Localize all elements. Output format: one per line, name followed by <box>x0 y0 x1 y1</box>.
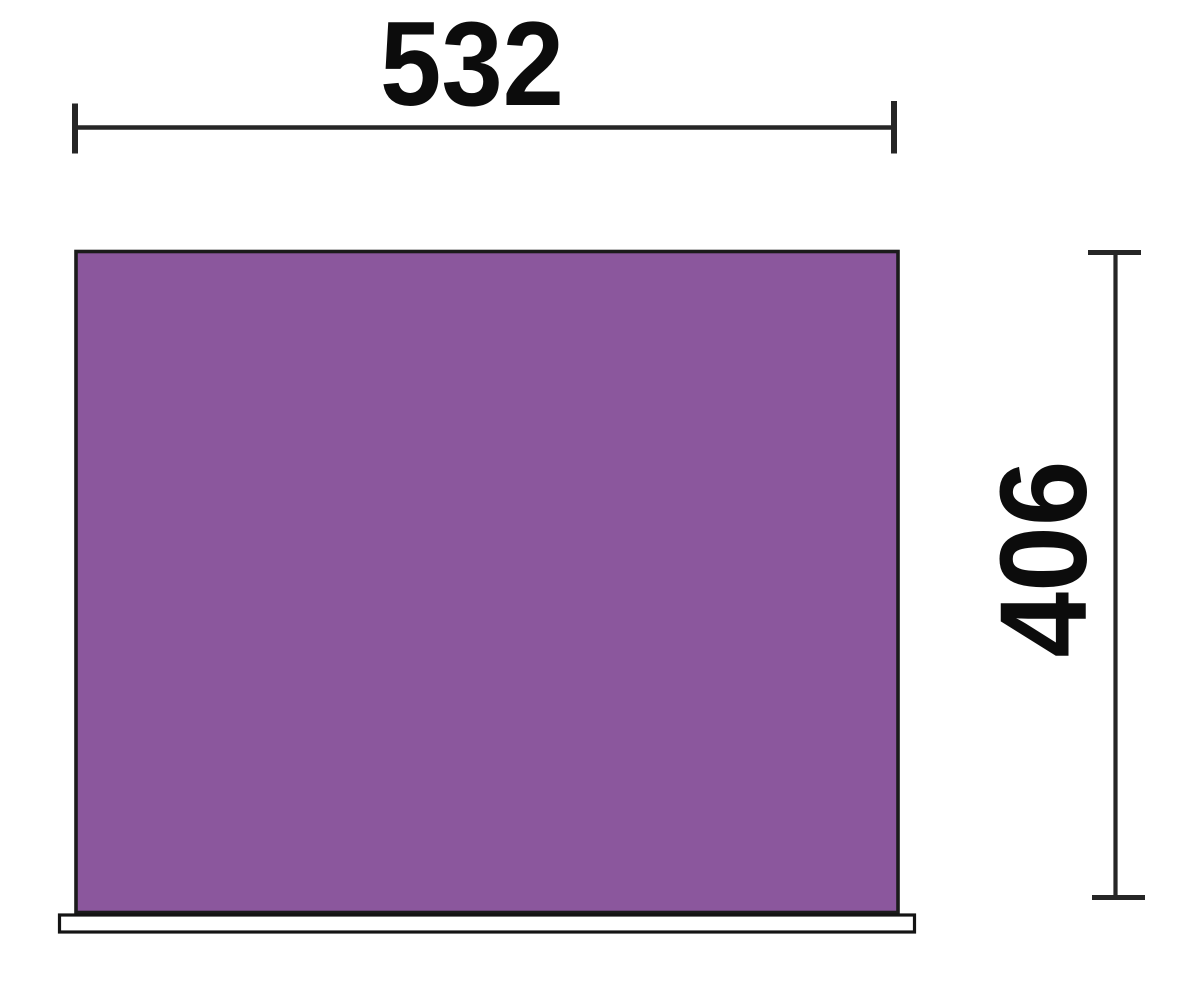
svg-text:406: 406 <box>976 461 1113 658</box>
svg-text:532: 532 <box>380 0 564 131</box>
